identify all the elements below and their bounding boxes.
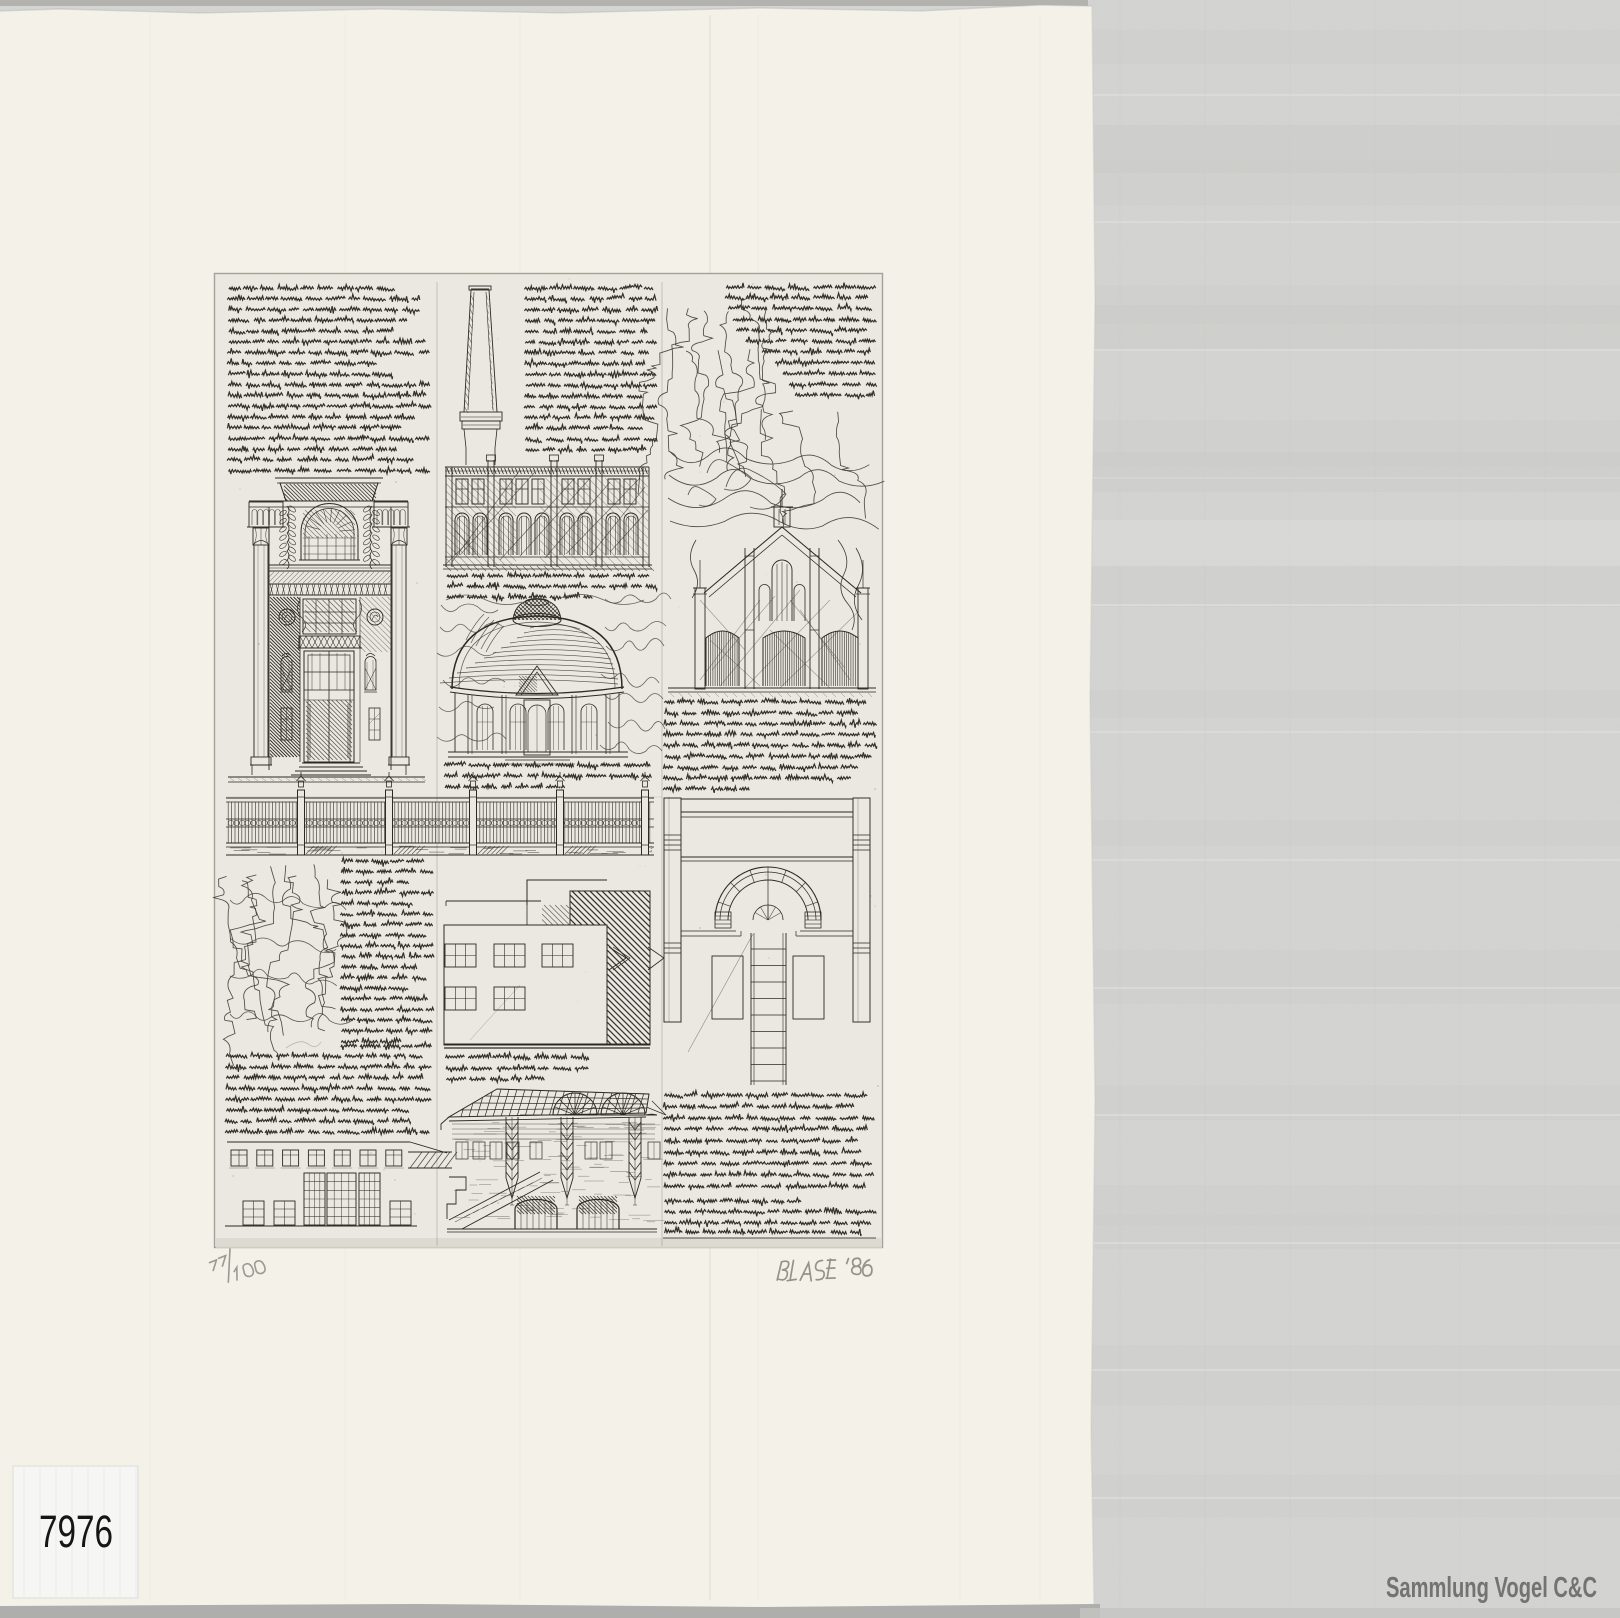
svg-text:7976: 7976 — [39, 1506, 113, 1557]
svg-text:Sammlung Vogel C&C: Sammlung Vogel C&C — [1386, 1572, 1597, 1604]
